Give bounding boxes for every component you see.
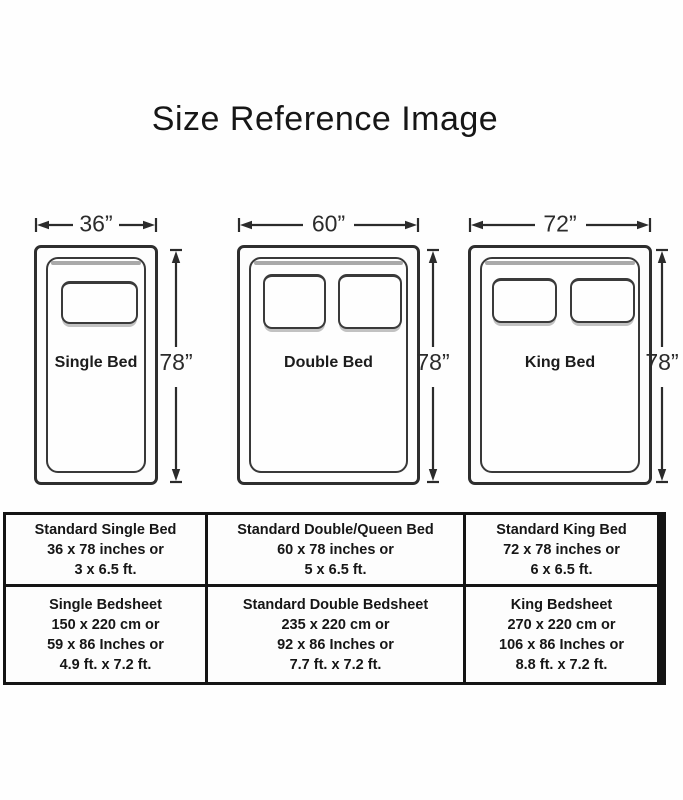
- king-bed-diagram: King Bed: [468, 245, 652, 485]
- pillow-icon: [61, 281, 138, 324]
- size-reference-page: Size Reference Image 36” Single Bed 7: [0, 0, 683, 800]
- double-bed-diagram: Double Bed: [237, 245, 420, 485]
- bed-label: Single Bed: [48, 354, 144, 372]
- pillow-icon: [338, 274, 402, 329]
- pillow-icon: [263, 274, 326, 329]
- pillow-icon: [492, 278, 557, 323]
- headboard-shadow: [51, 261, 141, 265]
- table-cell-line: 6 x 6.5 ft.: [530, 560, 592, 580]
- table-cell-line: Standard King Bed: [496, 520, 627, 540]
- height-dimension-label: 78”: [159, 349, 192, 376]
- table-cell-line: 7.7 ft. x 7.2 ft.: [290, 655, 382, 675]
- table-cell-standard-single-bed: Standard Single Bed 36 x 78 inches or 3 …: [6, 515, 205, 584]
- table-cell-line: 8.8 ft. x 7.2 ft.: [516, 655, 608, 675]
- table-cell-single-bedsheet: Single Bedsheet 150 x 220 cm or 59 x 86 …: [6, 587, 205, 682]
- table-cell-line: 3 x 6.5 ft.: [74, 560, 136, 580]
- table-cell-line: 72 x 78 inches or: [503, 540, 620, 560]
- table-cell-line: 4.9 ft. x 7.2 ft.: [60, 655, 152, 675]
- single-bed-height-arrow: 78”: [167, 248, 185, 484]
- table-cell-standard-double-queen-bed: Standard Double/Queen Bed 60 x 78 inches…: [208, 515, 463, 584]
- mattress-outline: Double Bed: [249, 257, 408, 473]
- headboard-shadow: [254, 261, 403, 265]
- table-cell-line: 150 x 220 cm or: [51, 615, 159, 635]
- table-cell-line: Standard Single Bed: [35, 520, 177, 540]
- table-cell-line: 59 x 86 Inches or: [47, 635, 164, 655]
- table-cell-line: King Bedsheet: [511, 595, 613, 615]
- table-cell-line: 106 x 86 Inches or: [499, 635, 624, 655]
- table-cell-line: 5 x 6.5 ft.: [304, 560, 366, 580]
- height-dimension-label: 78”: [645, 349, 678, 376]
- mattress-outline: King Bed: [480, 257, 640, 473]
- table-cell-line: 92 x 86 Inches or: [277, 635, 394, 655]
- table-cell-king-bedsheet: King Bedsheet 270 x 220 cm or 106 x 86 I…: [466, 587, 657, 682]
- double-bed-width-arrow: 60”: [237, 216, 420, 234]
- table-cell-standard-king-bed: Standard King Bed 72 x 78 inches or 6 x …: [466, 515, 657, 584]
- headboard-shadow: [485, 261, 635, 265]
- table-cell-line: 270 x 220 cm or: [507, 615, 615, 635]
- table-cell-line: Single Bedsheet: [49, 595, 162, 615]
- pillow-icon: [570, 278, 635, 323]
- king-bed-height-arrow: 78”: [653, 248, 671, 484]
- single-bed-diagram: Single Bed: [34, 245, 158, 485]
- bed-label: Double Bed: [251, 354, 406, 372]
- single-bed-width-arrow: 36”: [34, 216, 158, 234]
- king-bed-width-arrow: 72”: [468, 216, 652, 234]
- double-bed-height-arrow: 78”: [424, 248, 442, 484]
- page-title: Size Reference Image: [0, 100, 650, 139]
- width-dimension-label: 60”: [312, 210, 345, 237]
- mattress-outline: Single Bed: [46, 257, 146, 473]
- table-cell-line: 36 x 78 inches or: [47, 540, 164, 560]
- width-dimension-label: 36”: [79, 210, 112, 237]
- bed-label: King Bed: [482, 354, 638, 372]
- table-cell-line: Standard Double Bedsheet: [243, 595, 428, 615]
- table-cell-line: Standard Double/Queen Bed: [237, 520, 434, 540]
- height-dimension-label: 78”: [416, 349, 449, 376]
- table-cell-line: 235 x 220 cm or: [281, 615, 389, 635]
- table-cell-line: 60 x 78 inches or: [277, 540, 394, 560]
- width-dimension-label: 72”: [543, 210, 576, 237]
- size-table: Standard Single Bed 36 x 78 inches or 3 …: [3, 512, 666, 685]
- table-cell-standard-double-bedsheet: Standard Double Bedsheet 235 x 220 cm or…: [208, 587, 463, 682]
